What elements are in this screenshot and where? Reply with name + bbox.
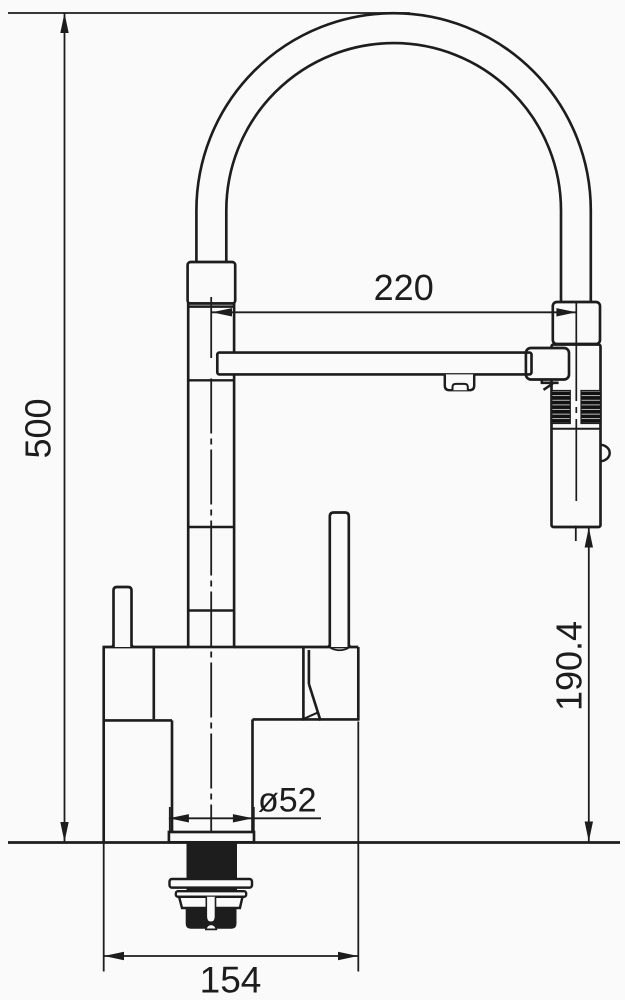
svg-text:ø52: ø52 (258, 782, 317, 820)
svg-text:190.4: 190.4 (549, 621, 590, 711)
svg-text:154: 154 (200, 960, 262, 1000)
svg-text:500: 500 (18, 398, 59, 458)
svg-text:220: 220 (374, 267, 434, 308)
